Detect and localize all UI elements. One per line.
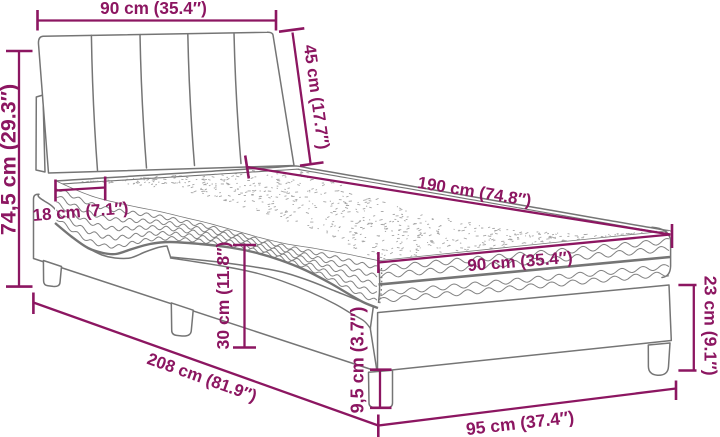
svg-text:90 cm (35.4″): 90 cm (35.4″) (100, 0, 207, 18)
svg-text:30 cm (11.8″): 30 cm (11.8″) (213, 242, 233, 350)
svg-text:23 cm (9.1″): 23 cm (9.1″) (700, 276, 720, 376)
svg-text:74,5 cm (29.3″): 74,5 cm (29.3″) (0, 84, 21, 235)
svg-text:9,5 cm (3.7″): 9,5 cm (3.7″) (348, 307, 368, 414)
